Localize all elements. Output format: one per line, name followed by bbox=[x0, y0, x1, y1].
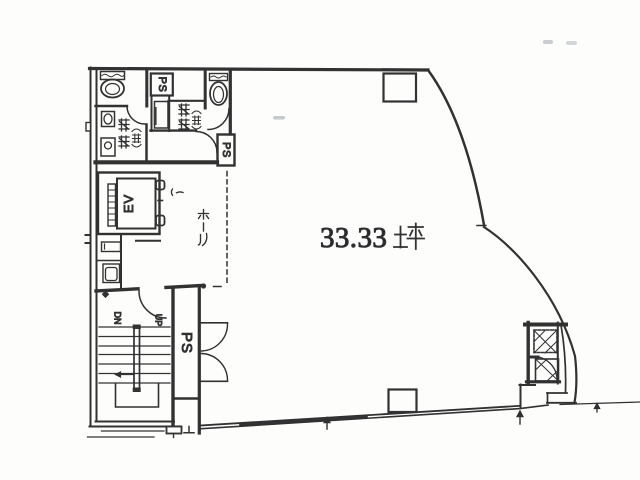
svg-text:DN: DN bbox=[113, 312, 123, 325]
svg-text:EV: EV bbox=[121, 194, 136, 213]
svg-text:33.33: 33.33 bbox=[320, 222, 387, 254]
svg-text:UP: UP bbox=[154, 314, 164, 327]
svg-text:PS: PS bbox=[178, 332, 195, 354]
svg-text:PS: PS bbox=[156, 77, 168, 93]
svg-text:PS: PS bbox=[220, 142, 232, 158]
